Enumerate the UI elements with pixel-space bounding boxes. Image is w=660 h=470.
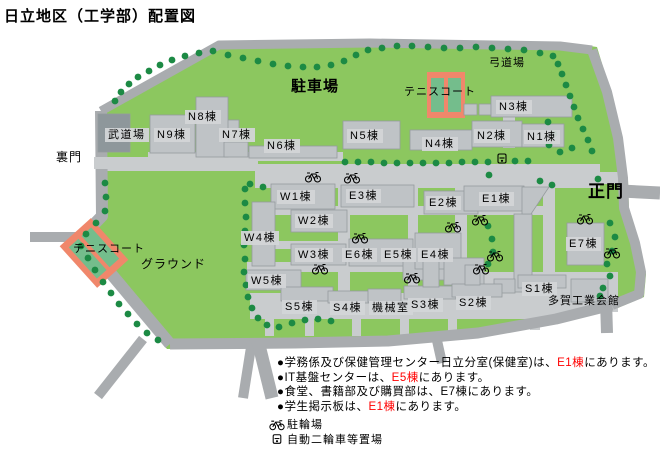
tree-icon xyxy=(489,236,496,243)
note-text: ●学生掲示板は、 xyxy=(277,401,368,413)
bicycle-icon xyxy=(270,420,284,429)
tree-icon xyxy=(567,93,574,100)
label-kikai: 機械室 xyxy=(369,301,413,315)
building-shape xyxy=(224,142,248,157)
tree-icon xyxy=(242,200,249,207)
tree-icon xyxy=(604,261,611,268)
tree-icon xyxy=(108,290,115,297)
tree-icon xyxy=(557,149,564,156)
tree-icon xyxy=(100,279,107,286)
label-n3: N3棟 xyxy=(496,100,532,114)
tree-icon xyxy=(569,145,576,152)
label-e3: E3棟 xyxy=(346,189,381,203)
tree-icon xyxy=(585,137,592,144)
note-line: ●学務係及び保健管理センター日立分室(保健室)は、E1棟にあります。 xyxy=(277,356,655,371)
tree-icon xyxy=(135,74,142,81)
tree-icon xyxy=(300,64,307,71)
tree-icon xyxy=(315,316,322,323)
tree-icon xyxy=(420,160,427,167)
tree-icon xyxy=(607,273,614,280)
label-n2: N2棟 xyxy=(474,129,510,143)
legend-label: 自動二輪車等置場 xyxy=(287,431,383,447)
tree-icon xyxy=(521,47,528,54)
note-highlight: E5棟 xyxy=(392,372,419,384)
tree-icon xyxy=(276,324,283,331)
tree-icon xyxy=(118,89,125,96)
tree-icon xyxy=(196,50,203,57)
tree-icon xyxy=(563,82,570,89)
tree-icon xyxy=(169,57,176,64)
tree-icon xyxy=(368,159,375,166)
note-line: ●IT基盤センターは、E5棟にあります。 xyxy=(277,371,655,386)
label-w1: W1棟 xyxy=(277,190,315,204)
label-n7: N7棟 xyxy=(219,128,255,142)
label-w4: W4棟 xyxy=(241,231,279,245)
building-shape xyxy=(196,97,228,157)
tree-icon xyxy=(249,305,256,312)
tree-icon xyxy=(365,47,372,54)
tree-icon xyxy=(580,126,587,133)
tree-icon xyxy=(489,45,496,52)
tree-icon xyxy=(407,160,414,167)
label-s3: S3棟 xyxy=(408,298,443,312)
tree-icon xyxy=(600,285,607,292)
tree-icon xyxy=(341,58,348,65)
tree-icon xyxy=(102,180,109,187)
tree-icon xyxy=(260,184,267,191)
tree-icon xyxy=(549,182,556,189)
notes: ●学務係及び保健管理センター日立分室(保健室)は、E1棟にあります。●IT基盤セ… xyxy=(277,356,655,414)
note-text: ●食堂、書籍部及び購買部は、E7棟にあります。 xyxy=(277,386,538,398)
label-n1: N1棟 xyxy=(524,130,560,144)
tree-icon xyxy=(146,68,153,75)
label-w2: W2棟 xyxy=(295,214,333,228)
tree-icon xyxy=(612,234,619,241)
tree-icon xyxy=(134,321,141,328)
tree-icon xyxy=(126,81,133,88)
road xyxy=(243,341,252,398)
wheel xyxy=(501,160,503,162)
structure xyxy=(479,104,491,115)
tree-icon xyxy=(182,53,189,60)
tree-icon xyxy=(555,61,562,68)
tree-icon xyxy=(485,159,492,166)
label-e1: E1棟 xyxy=(479,192,514,206)
bicycle-icon xyxy=(269,417,285,431)
gate-crossing xyxy=(94,157,124,169)
tree-icon xyxy=(459,159,466,166)
paved-path xyxy=(448,312,457,332)
tree-icon xyxy=(550,53,557,60)
legend-label: 駐輪場 xyxy=(287,416,323,432)
tree-icon xyxy=(441,45,448,52)
tree-icon xyxy=(473,44,480,51)
label-s2: S2棟 xyxy=(456,296,491,310)
tree-icon xyxy=(92,267,99,274)
label-n8: N8棟 xyxy=(185,110,221,124)
area-label-tennis-west: テニスコート xyxy=(73,243,145,255)
label-n9: N9棟 xyxy=(154,128,190,142)
tree-icon xyxy=(355,159,362,166)
tree-icon xyxy=(485,223,492,230)
tree-icon xyxy=(379,45,386,52)
building-shape xyxy=(423,259,439,287)
note-text: ●学務係及び保健管理センター日立分室(保健室)は、 xyxy=(277,357,557,369)
note-highlight: E1棟 xyxy=(368,401,395,413)
tree-icon xyxy=(537,178,544,185)
moped-icon xyxy=(273,434,281,443)
tree-icon xyxy=(210,48,217,55)
label-w3: W3棟 xyxy=(295,248,333,262)
tree-icon xyxy=(545,119,552,126)
tree-icon xyxy=(157,62,164,69)
label-n4: N4棟 xyxy=(422,137,458,151)
tree-icon xyxy=(240,55,247,62)
building-n7 xyxy=(224,142,248,157)
tree-icon xyxy=(394,160,401,167)
label-e7: E7棟 xyxy=(566,237,601,251)
tree-icon xyxy=(285,63,292,70)
road xyxy=(258,341,272,398)
area-label-ground: グラウンド xyxy=(141,258,206,270)
tree-icon xyxy=(512,158,519,165)
road xyxy=(621,191,660,193)
paved-path xyxy=(352,318,361,336)
main-gate-label: 正門 xyxy=(588,186,624,198)
label-e6: E6棟 xyxy=(342,248,377,262)
note-text: にあります。 xyxy=(419,372,490,384)
legend: 駐輪場自動二輪車等置場 xyxy=(269,416,383,446)
building-s5 xyxy=(281,287,333,301)
tree-icon xyxy=(264,322,271,329)
tree-icon xyxy=(112,98,119,105)
tree-icon xyxy=(242,256,249,263)
wheel xyxy=(276,440,278,442)
building-n8 xyxy=(196,97,228,157)
tree-icon xyxy=(409,43,416,50)
back-gate-label: 裏門 xyxy=(56,151,82,163)
label-s5: S5棟 xyxy=(282,300,317,314)
tree-icon xyxy=(116,301,123,308)
tree-icon xyxy=(525,158,532,165)
tree-icon xyxy=(486,172,493,179)
tree-icon xyxy=(353,52,360,59)
campus-map-page: 日立地区（工学部）配置図 武道場N9棟N8棟N7棟N6棟N5棟N4棟N3棟N2棟… xyxy=(0,0,660,470)
label-budojo: 武道場 xyxy=(105,128,149,142)
tree-icon xyxy=(457,45,464,52)
tree-icon xyxy=(103,194,110,201)
area-label-tennis-north: テニスコート xyxy=(404,86,476,98)
structure xyxy=(464,104,477,115)
tree-icon xyxy=(394,43,401,50)
tree-icon xyxy=(446,160,453,167)
tree-icon xyxy=(607,220,614,227)
tree-icon xyxy=(342,159,349,166)
label-s4: S4棟 xyxy=(330,301,365,315)
tree-icon xyxy=(589,148,596,155)
tree-icon xyxy=(270,61,277,68)
tree-icon xyxy=(571,104,578,111)
moped-icon xyxy=(269,432,285,446)
tree-icon xyxy=(505,46,512,53)
paved-path xyxy=(400,315,409,335)
tree-icon xyxy=(102,208,109,215)
tree-icon xyxy=(144,330,151,337)
tree-icon xyxy=(241,269,248,276)
label-s1: S1棟 xyxy=(522,282,557,296)
tree-icon xyxy=(243,214,250,221)
tree-icon xyxy=(328,62,335,69)
tree-icon xyxy=(289,320,296,327)
tree-icon xyxy=(472,159,479,166)
area-label-parking: 駐車場 xyxy=(291,81,339,93)
tree-icon xyxy=(125,311,132,318)
label-n5: N5棟 xyxy=(347,129,383,143)
tree-icon xyxy=(247,181,254,188)
tree-icon xyxy=(245,294,252,301)
note-line: ●食堂、書籍部及び購買部は、E7棟にあります。 xyxy=(277,385,655,400)
tree-icon xyxy=(83,231,90,238)
note-text: にあります。 xyxy=(584,357,655,369)
area-label-taga-hall: 多賀工業会館 xyxy=(548,295,620,307)
tree-icon xyxy=(381,160,388,167)
label-e5: E5棟 xyxy=(381,248,416,262)
tree-icon xyxy=(575,115,582,122)
note-text: にあります。 xyxy=(396,401,467,413)
tree-icon xyxy=(559,71,566,78)
note-highlight: E1棟 xyxy=(557,357,584,369)
tree-icon xyxy=(242,186,249,193)
tree-icon xyxy=(255,315,262,322)
tree-icon xyxy=(155,337,162,344)
area-label-kyudojo: 弓道場 xyxy=(489,57,525,69)
note-line: ●学生掲示板は、E1棟にあります。 xyxy=(277,400,655,415)
tree-icon xyxy=(93,220,100,227)
tree-icon xyxy=(328,318,335,325)
building-shape xyxy=(281,287,333,301)
tree-icon xyxy=(425,44,432,51)
note-text: ●IT基盤センターは、 xyxy=(277,372,392,384)
tree-icon xyxy=(537,50,544,57)
tree-icon xyxy=(225,52,232,59)
road xyxy=(98,339,143,396)
tree-icon xyxy=(255,58,262,65)
tree-icon xyxy=(85,255,92,262)
label-w5: W5棟 xyxy=(248,274,286,288)
tree-icon xyxy=(302,317,309,324)
label-n6: N6棟 xyxy=(264,139,300,153)
label-e4: E4棟 xyxy=(418,248,453,262)
tree-icon xyxy=(314,64,321,71)
label-e2: E2棟 xyxy=(426,196,461,210)
legend-bicycle: 駐輪場 xyxy=(269,416,383,431)
legend-moped: 自動二輪車等置場 xyxy=(269,431,383,446)
tree-icon xyxy=(433,160,440,167)
